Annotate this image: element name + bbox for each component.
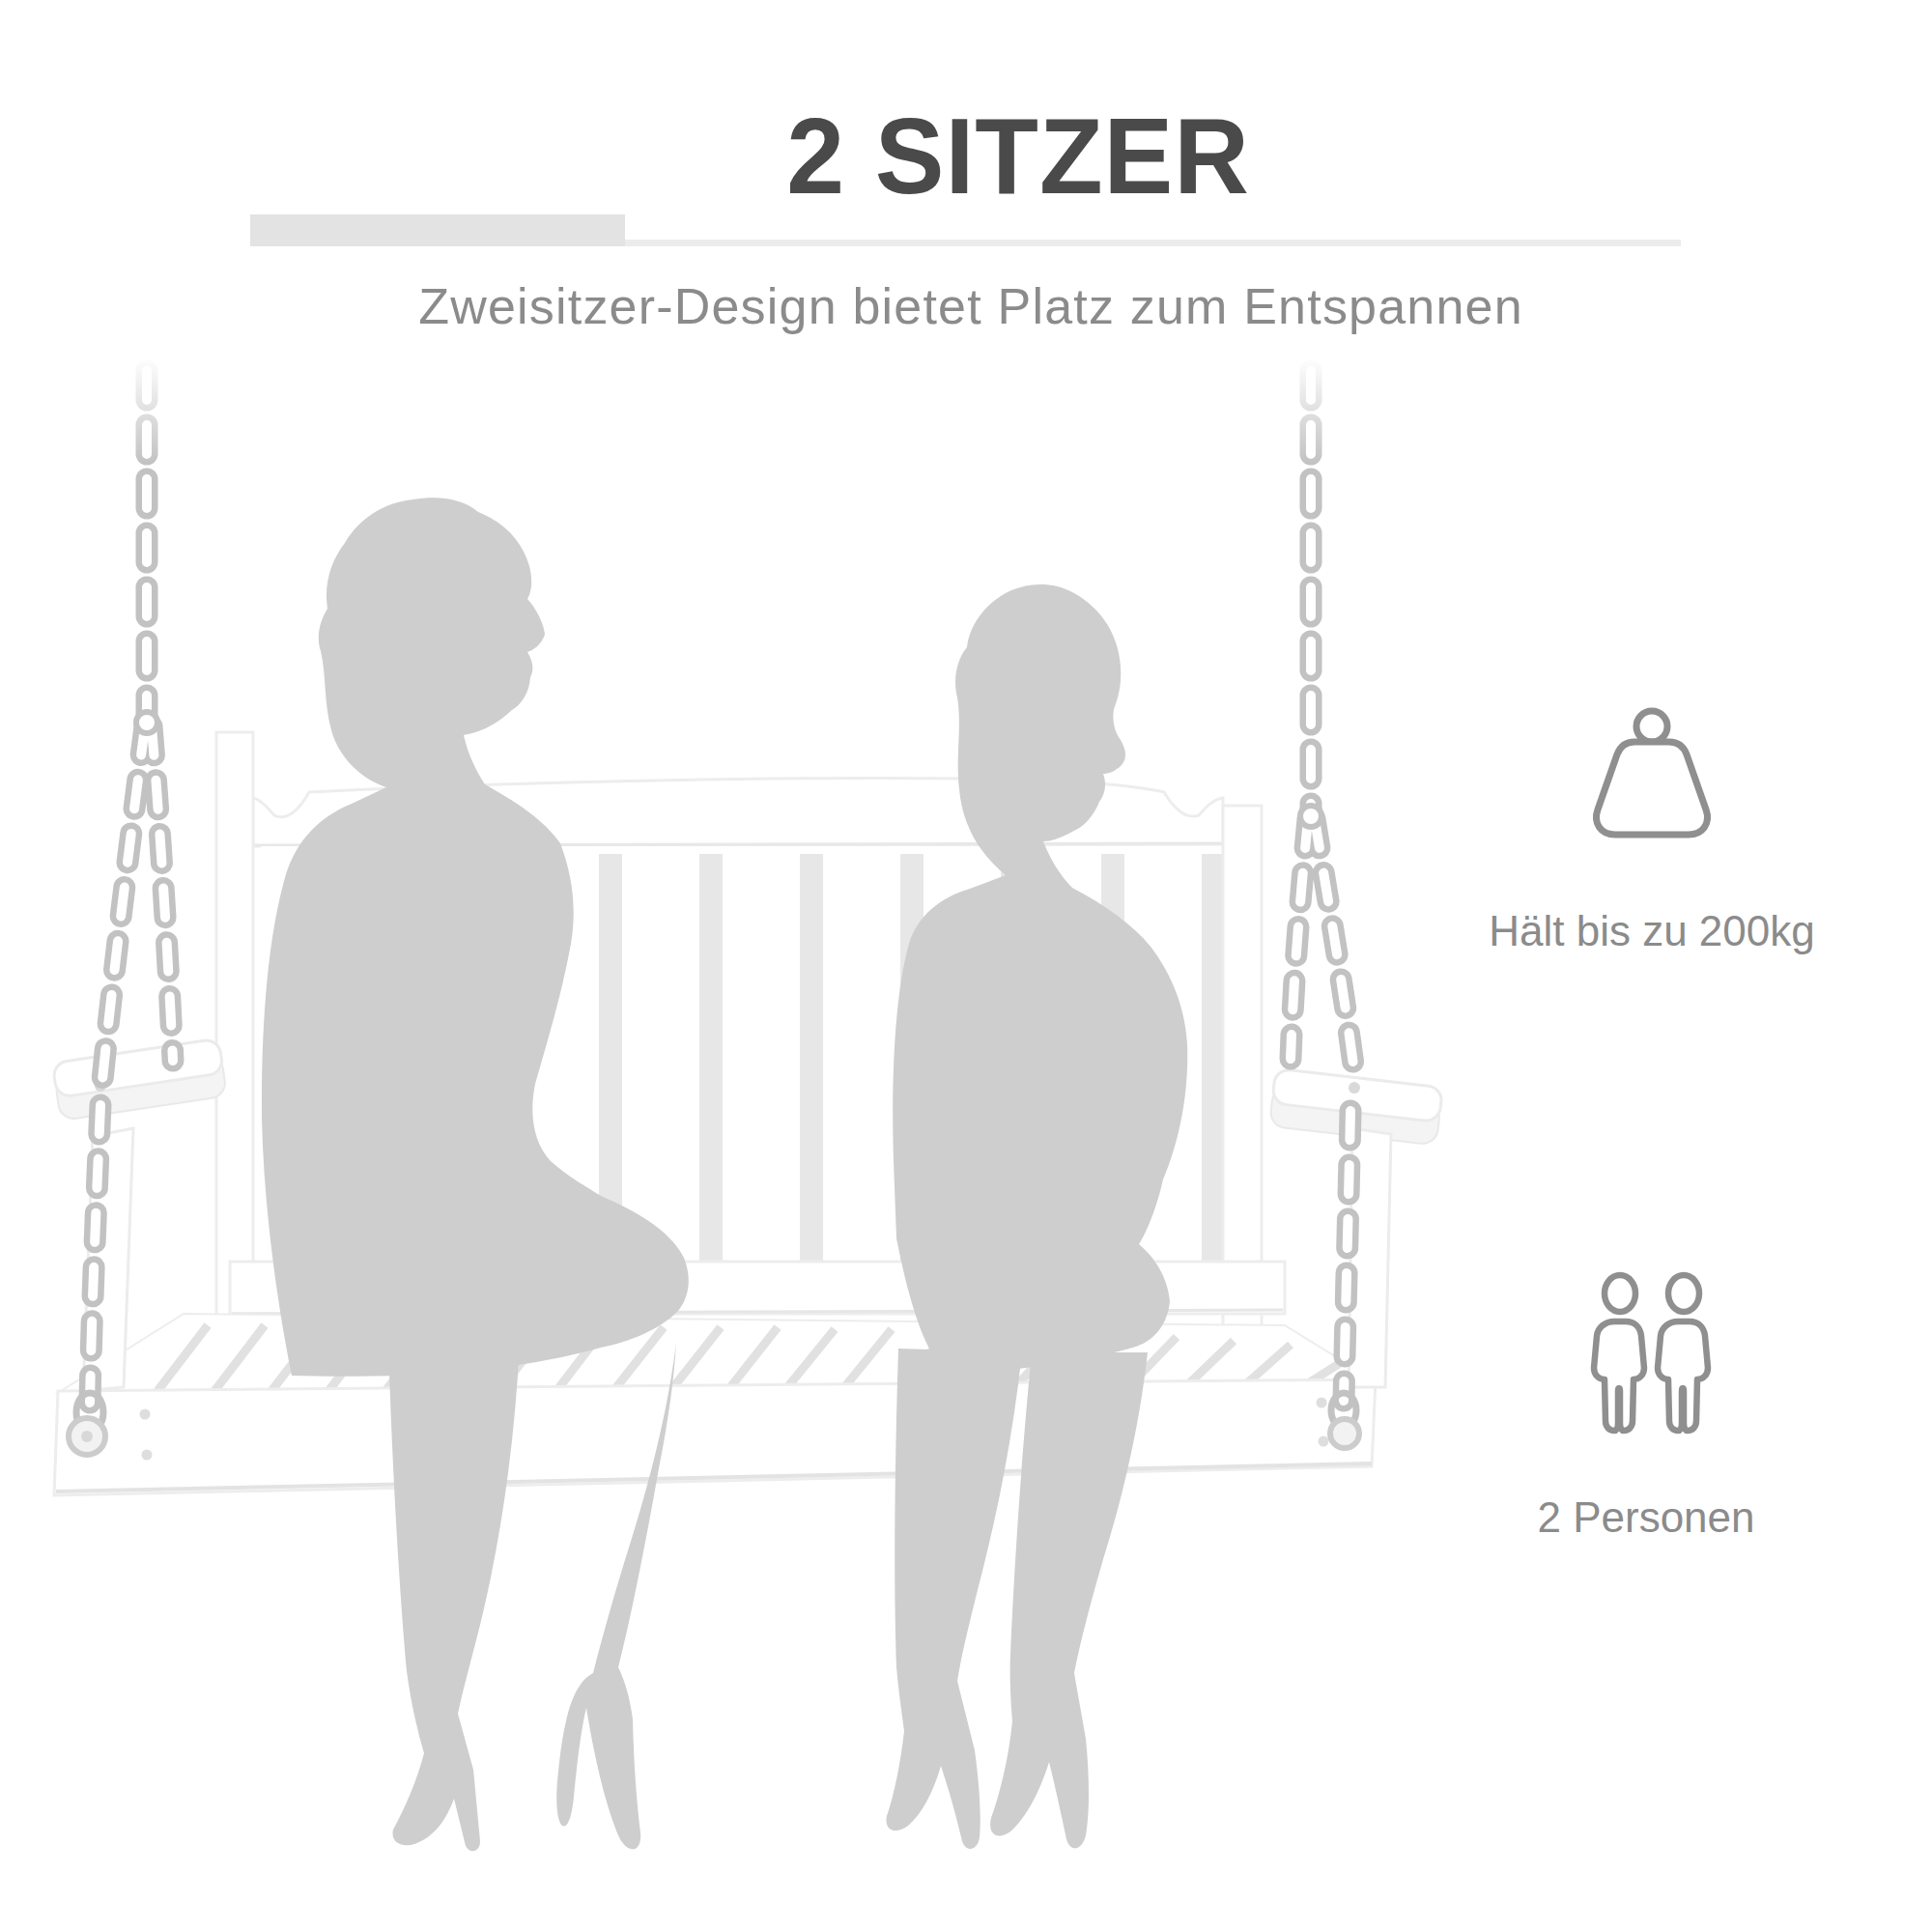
title-underline-thick [250, 214, 625, 246]
feature-weight-capacity [1583, 703, 1720, 856]
bench-seat [54, 1314, 1376, 1495]
persons-count-label: 2 Personen [1537, 1492, 1754, 1544]
weight-kettlebell-icon [1583, 703, 1720, 856]
right-chain [1291, 371, 1359, 1448]
two-persons-icon [1590, 1271, 1716, 1437]
product-feature-page: 2 SITZER Zweisitzer-Design bietet Platz … [0, 0, 1932, 1932]
weight-capacity-label: Hält bis zu 200kg [1489, 906, 1815, 957]
page-subtitle: Zweisitzer-Design bietet Platz zum Entsp… [418, 276, 1523, 336]
seated-person-silhouette-right [887, 584, 1188, 1849]
page-title: 2 SITZER [786, 102, 1250, 211]
feature-two-persons [1590, 1271, 1716, 1437]
